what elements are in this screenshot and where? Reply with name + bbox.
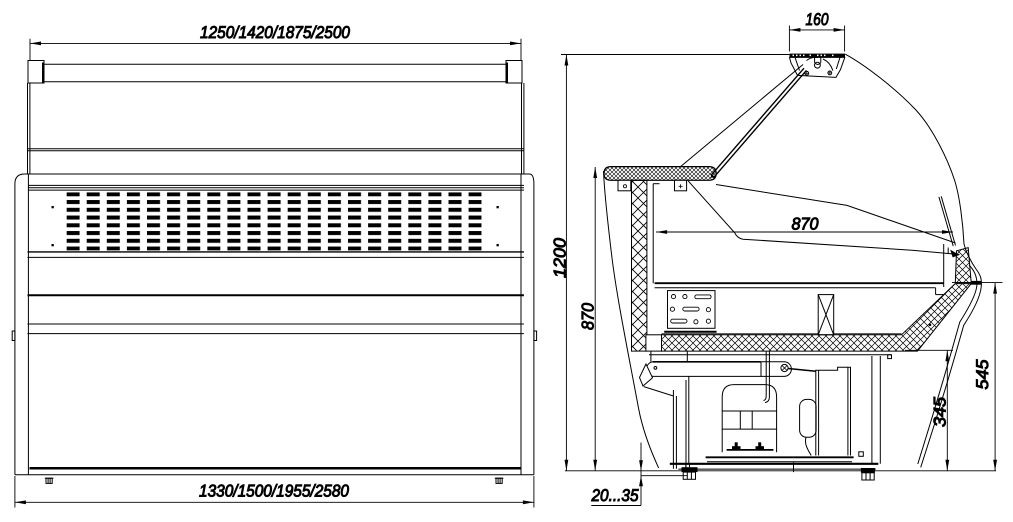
svg-text:1250/1420/1875/2500: 1250/1420/1875/2500 (200, 23, 350, 42)
svg-text:20...35: 20...35 (591, 486, 639, 505)
svg-text:870: 870 (579, 302, 598, 330)
svg-text:345: 345 (931, 396, 950, 427)
svg-text:160: 160 (806, 10, 829, 29)
svg-text:870: 870 (792, 215, 820, 234)
svg-text:545: 545 (973, 359, 992, 390)
svg-text:1330/1500/1955/2580: 1330/1500/1955/2580 (199, 481, 349, 500)
svg-text:1200: 1200 (551, 237, 570, 278)
